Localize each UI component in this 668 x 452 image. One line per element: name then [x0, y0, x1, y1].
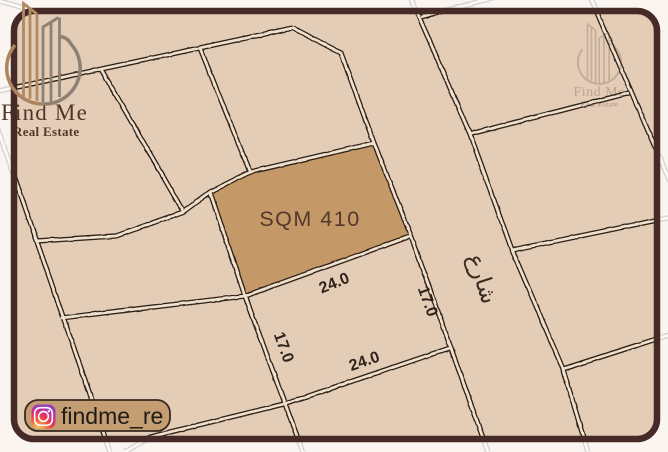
svg-text:Real Estate: Real Estate: [13, 124, 79, 139]
svg-text:Find Me: Find Me: [574, 84, 625, 99]
svg-text:SQM 410: SQM 410: [259, 207, 360, 231]
svg-text:Real Estate: Real Estate: [580, 100, 618, 109]
svg-text:findme_re: findme_re: [61, 403, 163, 429]
